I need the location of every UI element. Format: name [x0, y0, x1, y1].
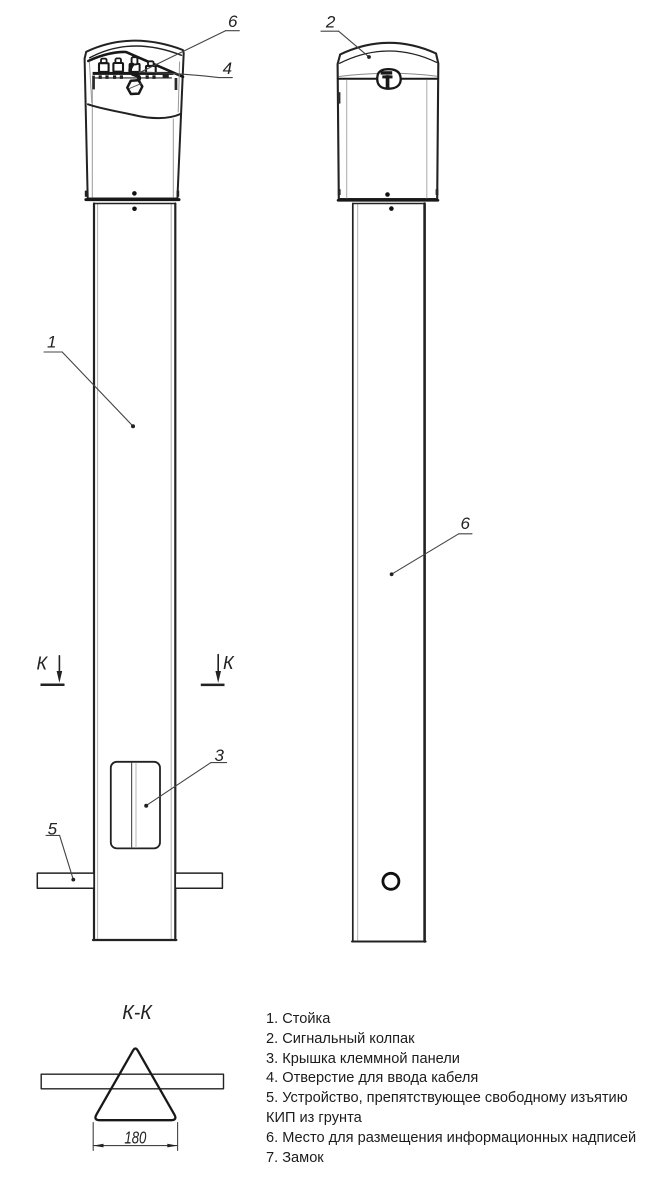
- svg-text:К: К: [37, 654, 49, 674]
- svg-text:К-К: К-К: [122, 1001, 153, 1024]
- svg-text:6: 6: [228, 12, 238, 31]
- svg-text:2: 2: [325, 13, 336, 32]
- svg-text:К: К: [223, 653, 235, 673]
- svg-text:3: 3: [214, 746, 224, 765]
- svg-text:6: 6: [460, 514, 470, 533]
- svg-text:1: 1: [47, 333, 56, 352]
- svg-text:4: 4: [223, 59, 232, 78]
- svg-text:180: 180: [124, 1127, 146, 1147]
- svg-text:5: 5: [48, 819, 58, 838]
